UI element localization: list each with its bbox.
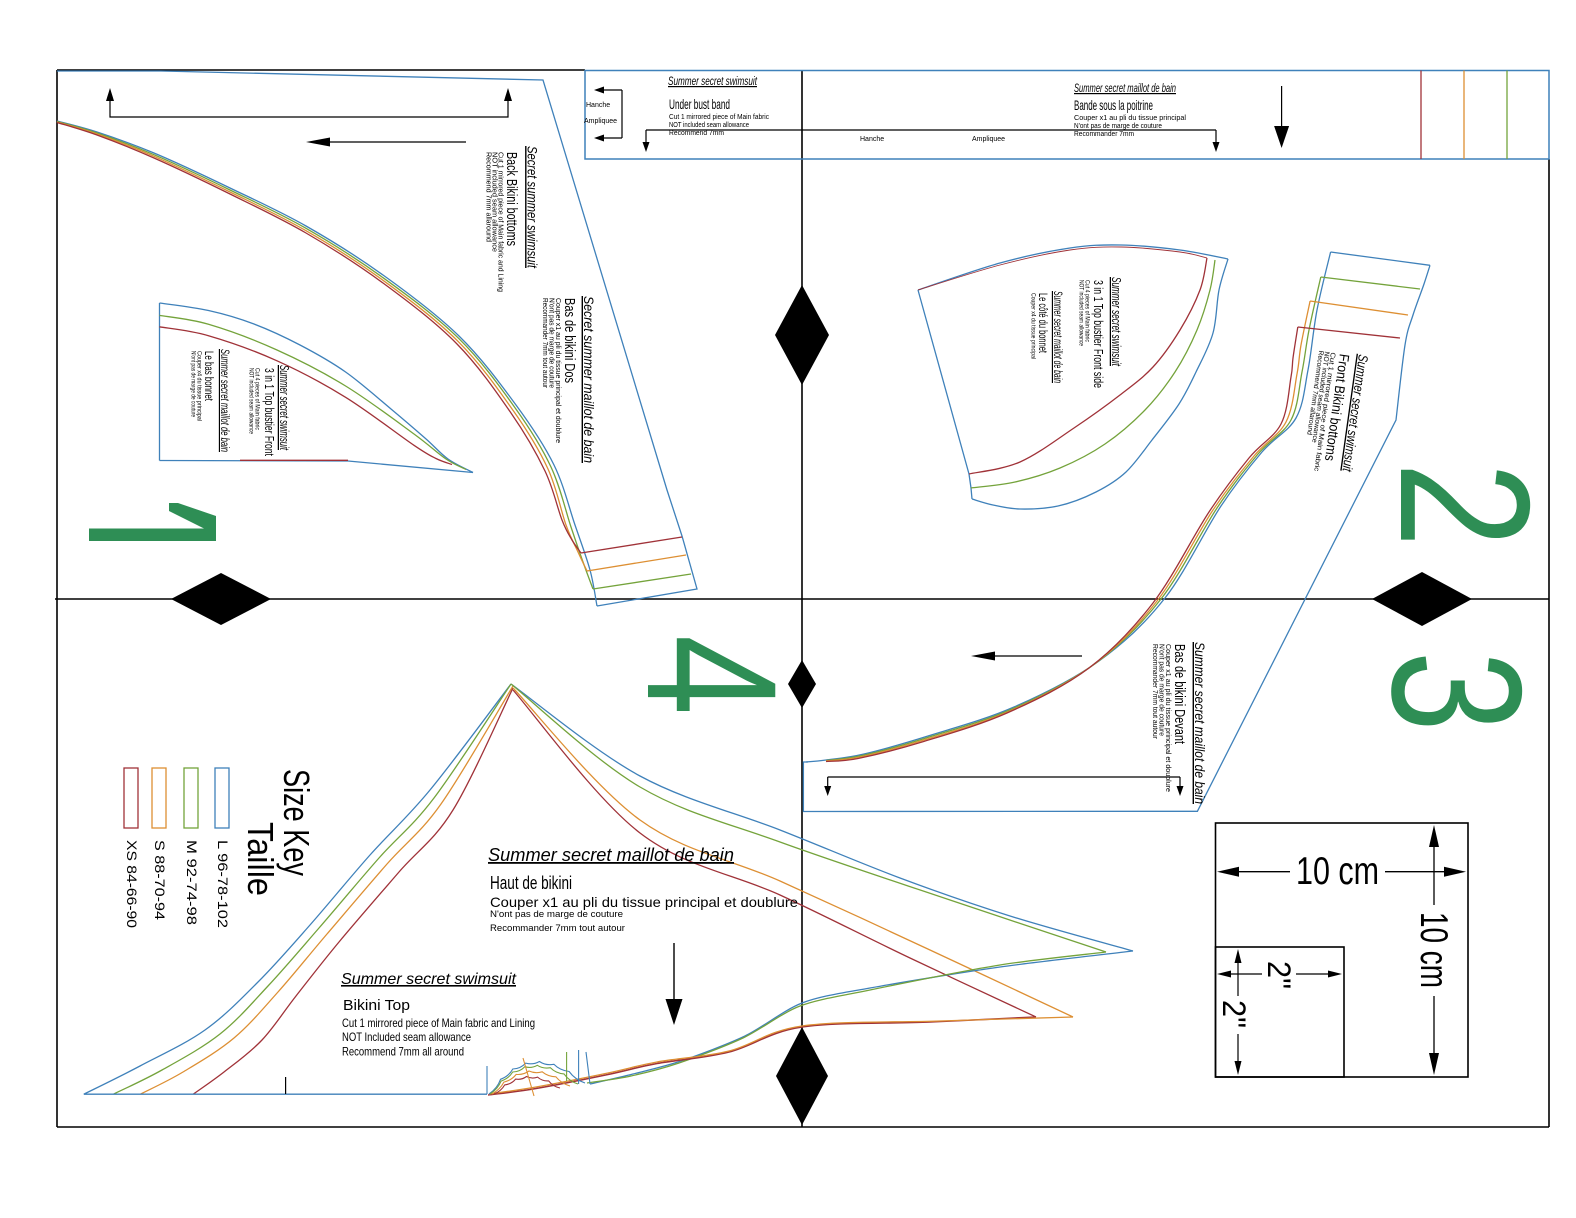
svg-text:Recommend 7mm all around: Recommend 7mm all around xyxy=(342,1045,464,1059)
svg-text:Summer secret maillot de bain: Summer secret maillot de bain xyxy=(488,845,734,865)
svg-text:Summer secret maillot de bain: Summer secret maillot de bain xyxy=(218,349,230,452)
svg-text:Haut de bikini: Haut de bikini xyxy=(490,873,572,893)
svg-text:NOT included seam allowance: NOT included seam allowance xyxy=(1078,280,1085,346)
svg-text:Summer secret swimsuit: Summer secret swimsuit xyxy=(668,74,757,88)
svg-text:Summer secret maillot de bain: Summer secret maillot de bain xyxy=(1051,291,1063,383)
svg-text:Couper x4 du tissue principal: Couper x4 du tissue principal xyxy=(1030,293,1037,359)
svg-text:Ampliquee: Ampliquee xyxy=(584,118,617,125)
svg-text:Under bust band: Under bust band xyxy=(669,96,730,112)
svg-text:Cut 1 mirrored piece of Main f: Cut 1 mirrored piece of Main fabric and … xyxy=(342,1016,535,1030)
svg-text:NOT included seam allowance: NOT included seam allowance xyxy=(248,368,255,434)
svg-text:Summer secret maillot de bain: Summer secret maillot de bain xyxy=(1192,642,1208,804)
svg-text:2": 2" xyxy=(1216,1000,1252,1028)
svg-text:M 92-74-98: M 92-74-98 xyxy=(184,840,199,925)
svg-text:2": 2" xyxy=(1261,961,1297,989)
svg-text:Couper x1 au pli du tissue pri: Couper x1 au pli du tissue principal et … xyxy=(490,894,798,910)
svg-text:Recommander 7mm: Recommander 7mm xyxy=(1074,131,1134,138)
svg-text:Secret summer swimsuit: Secret summer swimsuit xyxy=(525,146,541,269)
svg-text:NOT included seam allowance: NOT included seam allowance xyxy=(669,122,749,129)
svg-text:Couper x1 au pli du tissue pri: Couper x1 au pli du tissue principal xyxy=(1074,115,1186,122)
svg-text:Bas de bikini Devant: Bas de bikini Devant xyxy=(1171,644,1188,745)
svg-text:Recommander 7mm tout autour: Recommander 7mm tout autour xyxy=(1151,644,1158,740)
svg-text:Summer secret swimsuit: Summer secret swimsuit xyxy=(277,365,291,450)
svg-text:XS 84-66-90: XS 84-66-90 xyxy=(124,840,139,928)
svg-text:3 in 1 Top bustier Front side: 3 in 1 Top bustier Front side xyxy=(1091,280,1105,388)
svg-text:3: 3 xyxy=(1353,651,1560,732)
svg-text:Back Bikini bottoms: Back Bikini bottoms xyxy=(503,152,520,246)
svg-text:N'ont pas de marge de couture: N'ont pas de marge de couture xyxy=(490,909,623,920)
svg-text:S 88-70-94: S 88-70-94 xyxy=(152,840,167,921)
svg-text:Bikini Top: Bikini Top xyxy=(343,998,410,1014)
svg-text:NOT Included seam allowance: NOT Included seam allowance xyxy=(342,1030,471,1044)
svg-text:Cut 1 mirrored piece of Main f: Cut 1 mirrored piece of Main fabric xyxy=(669,114,769,121)
svg-text:L 96-78-102: L 96-78-102 xyxy=(215,840,230,928)
svg-text:N'ont pas de marge de couture: N'ont pas de marge de couture xyxy=(1074,123,1162,130)
svg-text:Recommend 7mm allaround: Recommend 7mm allaround xyxy=(485,152,492,242)
svg-text:Le côté du bonnet: Le côté du bonnet xyxy=(1036,293,1048,354)
svg-text:Summer secret swimsuit: Summer secret swimsuit xyxy=(1109,277,1123,366)
svg-text:10 cm: 10 cm xyxy=(1296,850,1379,893)
svg-text:Recommander 7mm tout autour: Recommander 7mm tout autour xyxy=(490,923,625,934)
svg-text:4: 4 xyxy=(608,635,814,715)
svg-text:Size Key: Size Key xyxy=(276,769,317,876)
svg-text:10 cm: 10 cm xyxy=(1412,912,1455,988)
svg-text:Le bas bonnet: Le bas bonnet xyxy=(202,351,214,402)
svg-text:2: 2 xyxy=(1361,462,1568,547)
svg-text:Taille: Taille xyxy=(240,822,281,896)
svg-text:3 in 1 Top bustier Front: 3 in 1 Top bustier Front xyxy=(262,368,276,456)
svg-text:Secret summer maillot de bain: Secret summer maillot de bain xyxy=(581,296,597,463)
svg-text:Hanche: Hanche xyxy=(586,102,610,109)
svg-text:Summer secret maillot de bain: Summer secret maillot de bain xyxy=(1074,81,1176,95)
svg-text:Bande sous la poitrine: Bande sous la poitrine xyxy=(1074,97,1153,113)
svg-text:Recommend 7mm: Recommend 7mm xyxy=(669,130,724,137)
svg-text:Summer secret swimsuit: Summer secret swimsuit xyxy=(341,971,517,988)
svg-text:N'ont pas de marge de couture: N'ont pas de marge de couture xyxy=(190,351,197,417)
svg-text:Bas de bikini Dos: Bas de bikini Dos xyxy=(561,298,578,383)
svg-text:Ampliquee: Ampliquee xyxy=(972,136,1005,143)
svg-text:Recommander 7mm tout autour: Recommander 7mm tout autour xyxy=(541,298,548,389)
svg-text:Hanche: Hanche xyxy=(860,136,884,143)
